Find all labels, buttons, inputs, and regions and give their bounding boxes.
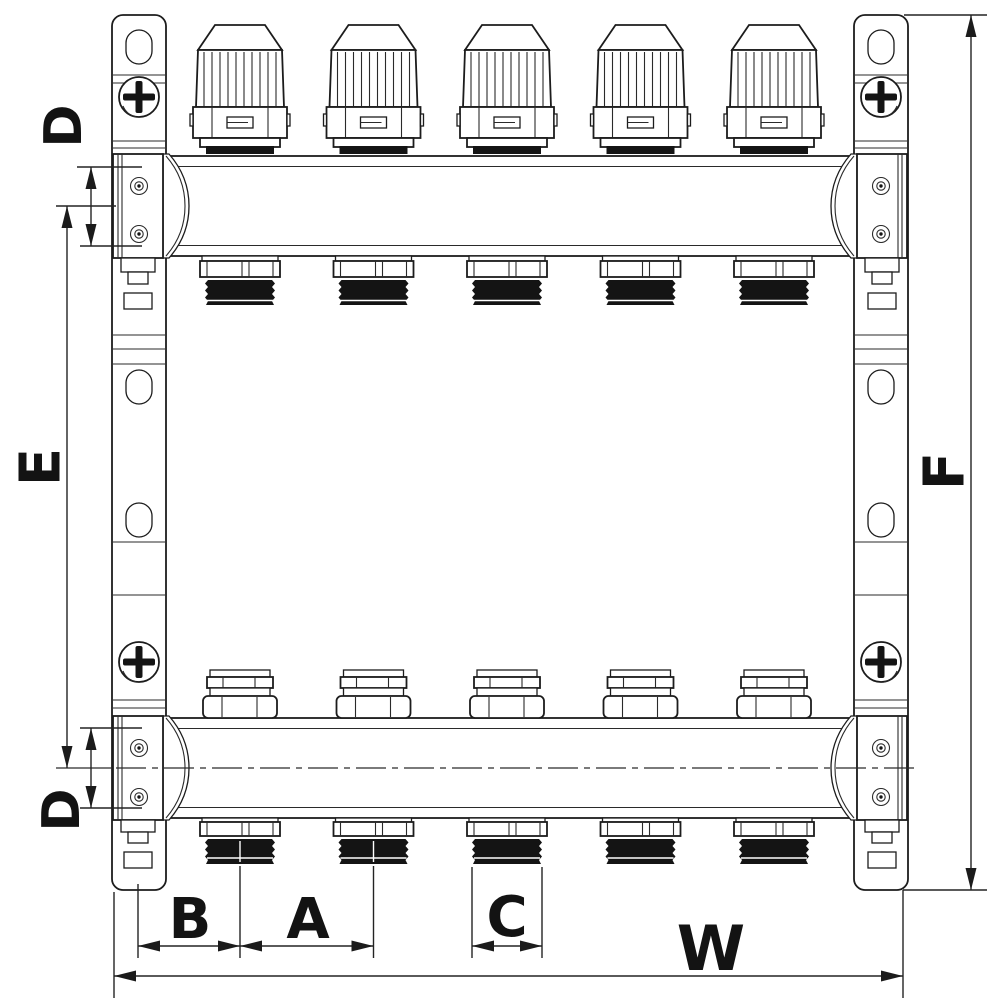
manifold-drawing-page: D E D F B A: [0, 0, 1000, 1000]
dim-label-d-top: D: [34, 104, 94, 147]
dim-label-f: F: [913, 452, 978, 490]
top-manifold-bar: [114, 156, 886, 256]
dimension-a: A: [240, 866, 374, 958]
dim-label-d-bottom: D: [32, 788, 92, 831]
dim-label-c: C: [486, 885, 527, 950]
dim-label-e: E: [9, 448, 74, 486]
dim-label-a: A: [286, 887, 330, 952]
dimension-f: F: [903, 15, 987, 890]
dim-label-b: B: [169, 887, 212, 952]
dimension-c: C: [472, 867, 542, 958]
manifold-technical-drawing: D E D F B A: [0, 0, 1000, 1000]
dim-label-w: W: [677, 912, 745, 985]
dimension-e: E: [9, 206, 117, 768]
